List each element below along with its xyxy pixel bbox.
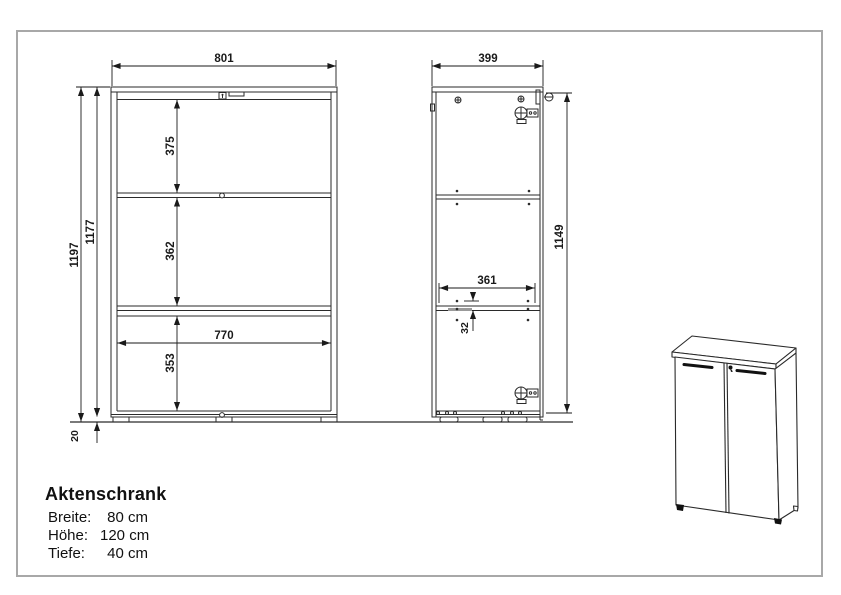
spec-label: Tiefe: <box>45 545 100 563</box>
spec-value: 80 cm <box>100 509 148 527</box>
product-title: Aktenschrank <box>45 484 166 505</box>
foot <box>216 417 232 422</box>
spec-row-depth: Tiefe: 40 cm <box>45 545 166 563</box>
cabinet-3d-view <box>672 336 798 525</box>
spec-value: 40 cm <box>100 545 148 563</box>
spec-row-height: Höhe: 120 cm <box>45 527 166 545</box>
front-view <box>111 87 337 422</box>
handle-side-knob <box>544 93 553 101</box>
shelf-section-mark <box>448 308 472 311</box>
spec-value: 120 cm <box>100 527 148 545</box>
foot <box>440 417 458 422</box>
dim-height-1177: 1177 <box>85 220 97 245</box>
dim-section-362: 362 <box>165 241 177 260</box>
dim-height-1149: 1149 <box>554 225 566 250</box>
side-view <box>431 87 554 422</box>
dim-height-1197: 1197 <box>69 243 81 268</box>
dim-depth-399: 399 <box>478 53 497 65</box>
cabinet-right-face <box>775 353 798 520</box>
dim-hole-spacing-32: 32 <box>459 322 471 334</box>
back-foot-3d <box>794 506 799 511</box>
technical-drawing-sheet: 801 1197 1177 375 362 353 770 20 <box>0 0 841 595</box>
foot <box>113 417 129 422</box>
spec-row-width: Breite: 80 cm <box>45 509 166 527</box>
foot <box>483 417 502 422</box>
screw-icon <box>518 96 524 102</box>
foot <box>508 417 527 422</box>
spec-label: Höhe: <box>45 527 100 545</box>
lock-rod-point <box>220 193 225 198</box>
dim-width-801: 801 <box>214 53 234 65</box>
product-info-block: Aktenschrank Breite: 80 cm Höhe: 120 cm … <box>45 484 166 563</box>
dim-section-375: 375 <box>165 136 177 156</box>
dim-inner-width-770: 770 <box>214 330 233 342</box>
spec-label: Breite: <box>45 509 100 527</box>
dim-section-353: 353 <box>165 353 177 372</box>
dim-inner-depth-361: 361 <box>477 275 497 287</box>
dim-feet-20: 20 <box>69 430 81 442</box>
foot <box>321 417 337 422</box>
screw-icon <box>455 97 461 103</box>
